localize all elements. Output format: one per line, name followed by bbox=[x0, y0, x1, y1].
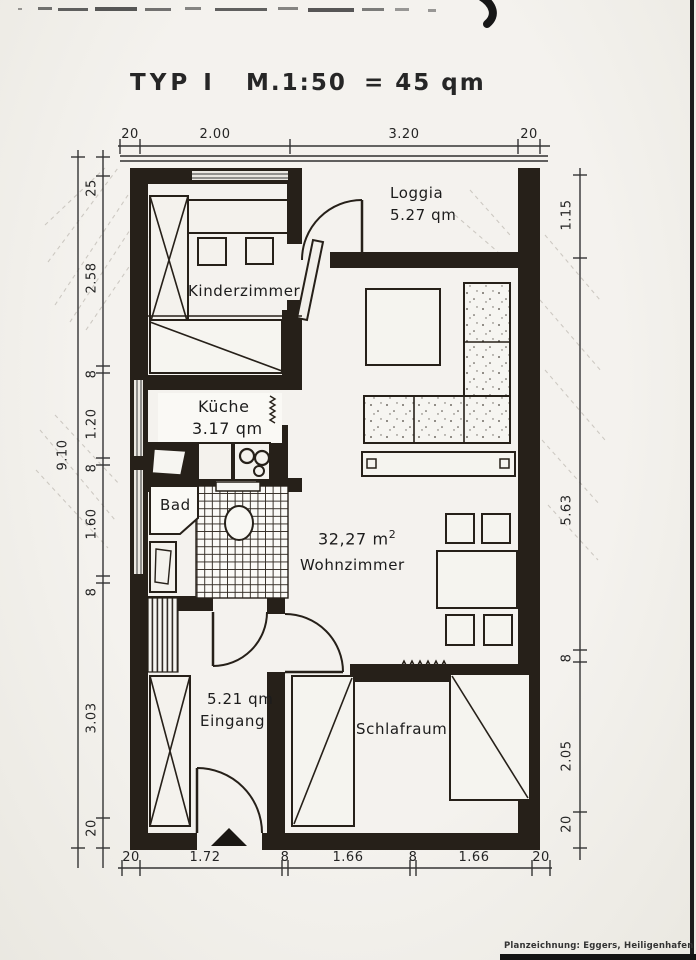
room-label-kueche: Küche bbox=[198, 397, 250, 416]
room-area-kueche: 3.17 qm bbox=[192, 419, 263, 438]
bad-tile-floor bbox=[196, 486, 288, 598]
wohnzimmer-area-exponent: 2 bbox=[389, 528, 397, 541]
floorplan-drawing bbox=[0, 0, 696, 960]
dim-bottom-2: 8 bbox=[281, 850, 290, 865]
scan-noise-top bbox=[18, 7, 436, 12]
dim-bottom-3: 1.66 bbox=[333, 850, 364, 865]
chair bbox=[484, 615, 512, 645]
dining-table bbox=[437, 551, 517, 608]
room-area-eingang: 5.21 qm bbox=[207, 690, 274, 708]
title-area: = 45 qm bbox=[364, 70, 486, 96]
room-label-kinderzimmer: Kinderzimmer bbox=[188, 282, 300, 300]
room-label-bad: Bad bbox=[160, 496, 191, 514]
dim-right-3: 2.05 bbox=[560, 741, 575, 772]
schlafraum-furniture bbox=[292, 661, 530, 826]
room-area-loggia: 5.27 qm bbox=[390, 206, 457, 224]
scan-right-border bbox=[690, 0, 694, 960]
dim-right-4: 20 bbox=[560, 815, 575, 833]
sofa-horizontal bbox=[364, 396, 510, 443]
dim-left-3: 1.20 bbox=[85, 409, 100, 440]
toilet-bowl bbox=[225, 506, 253, 540]
dim-bottom-6: 20 bbox=[532, 850, 550, 865]
dim-left-1: 2.58 bbox=[85, 263, 100, 294]
dim-top-3: 20 bbox=[520, 127, 538, 142]
kitchen-cabinet bbox=[198, 443, 232, 480]
corridor-door-arc bbox=[285, 614, 343, 672]
dim-top-2: 3.20 bbox=[389, 127, 420, 142]
scanned-floorplan-page: TYP I M.1:50 = 45 qm Loggia 5.27 qm Kind… bbox=[0, 0, 696, 960]
bad-door-arc bbox=[213, 612, 267, 666]
shelf-stripes bbox=[148, 598, 178, 672]
room-label-eingang: Eingang bbox=[200, 712, 265, 730]
dim-left-5: 1.60 bbox=[85, 509, 100, 540]
wohnzimmer-furniture bbox=[362, 283, 517, 645]
dim-left-8: 20 bbox=[85, 819, 100, 837]
dim-top-1: 2.00 bbox=[200, 127, 231, 142]
entrance-marker-icon bbox=[211, 828, 247, 846]
dim-bottom-5: 1.66 bbox=[459, 850, 490, 865]
dim-right-0: 1.15 bbox=[560, 200, 575, 231]
dim-bottom-0: 20 bbox=[122, 850, 140, 865]
sofa-vertical bbox=[464, 283, 510, 397]
coffee-table bbox=[366, 289, 440, 365]
wohnzimmer-area-value: 32,27 m bbox=[318, 529, 389, 548]
room-label-schlafraum: Schlafraum bbox=[356, 720, 447, 738]
dim-right-2: 8 bbox=[560, 654, 575, 663]
room-area-wohnzimmer: 32,27 m2 bbox=[318, 528, 396, 548]
chair bbox=[482, 514, 510, 543]
room-label-wohnzimmer: Wohnzimmer bbox=[300, 556, 405, 574]
eingang-furniture bbox=[148, 598, 190, 826]
room-label-loggia: Loggia bbox=[390, 184, 443, 202]
toilet-cistern bbox=[216, 482, 260, 491]
dim-bottom-4: 8 bbox=[409, 850, 418, 865]
plan-credit: Planzeichnung: Eggers, Heiligenhafen bbox=[504, 941, 693, 951]
dim-left-4: 8 bbox=[85, 464, 100, 473]
roof-edge-lines bbox=[120, 156, 548, 161]
dim-left-0: 25 bbox=[85, 179, 100, 197]
title-type: TYP I bbox=[130, 70, 216, 96]
side-table bbox=[246, 238, 273, 264]
dim-left-total: 9.10 bbox=[56, 440, 71, 471]
chair bbox=[446, 615, 474, 645]
footer-bar bbox=[500, 954, 696, 960]
dim-left-6: 8 bbox=[85, 588, 100, 597]
chair bbox=[446, 514, 474, 543]
kinderzimmer-door-leaf bbox=[297, 240, 323, 320]
bed bbox=[188, 200, 288, 233]
dim-right-1: 5.63 bbox=[560, 495, 575, 526]
dim-left-7: 3.03 bbox=[85, 703, 100, 734]
entrance-door-arc bbox=[197, 768, 262, 833]
sideboard bbox=[362, 452, 515, 476]
dim-bottom-1: 1.72 bbox=[190, 850, 221, 865]
side-table bbox=[198, 238, 226, 265]
dim-top-0: 20 bbox=[121, 127, 139, 142]
title-scale: M.1:50 bbox=[246, 70, 347, 96]
dim-left-2: 8 bbox=[85, 370, 100, 379]
handwriting-stroke bbox=[480, 0, 493, 24]
